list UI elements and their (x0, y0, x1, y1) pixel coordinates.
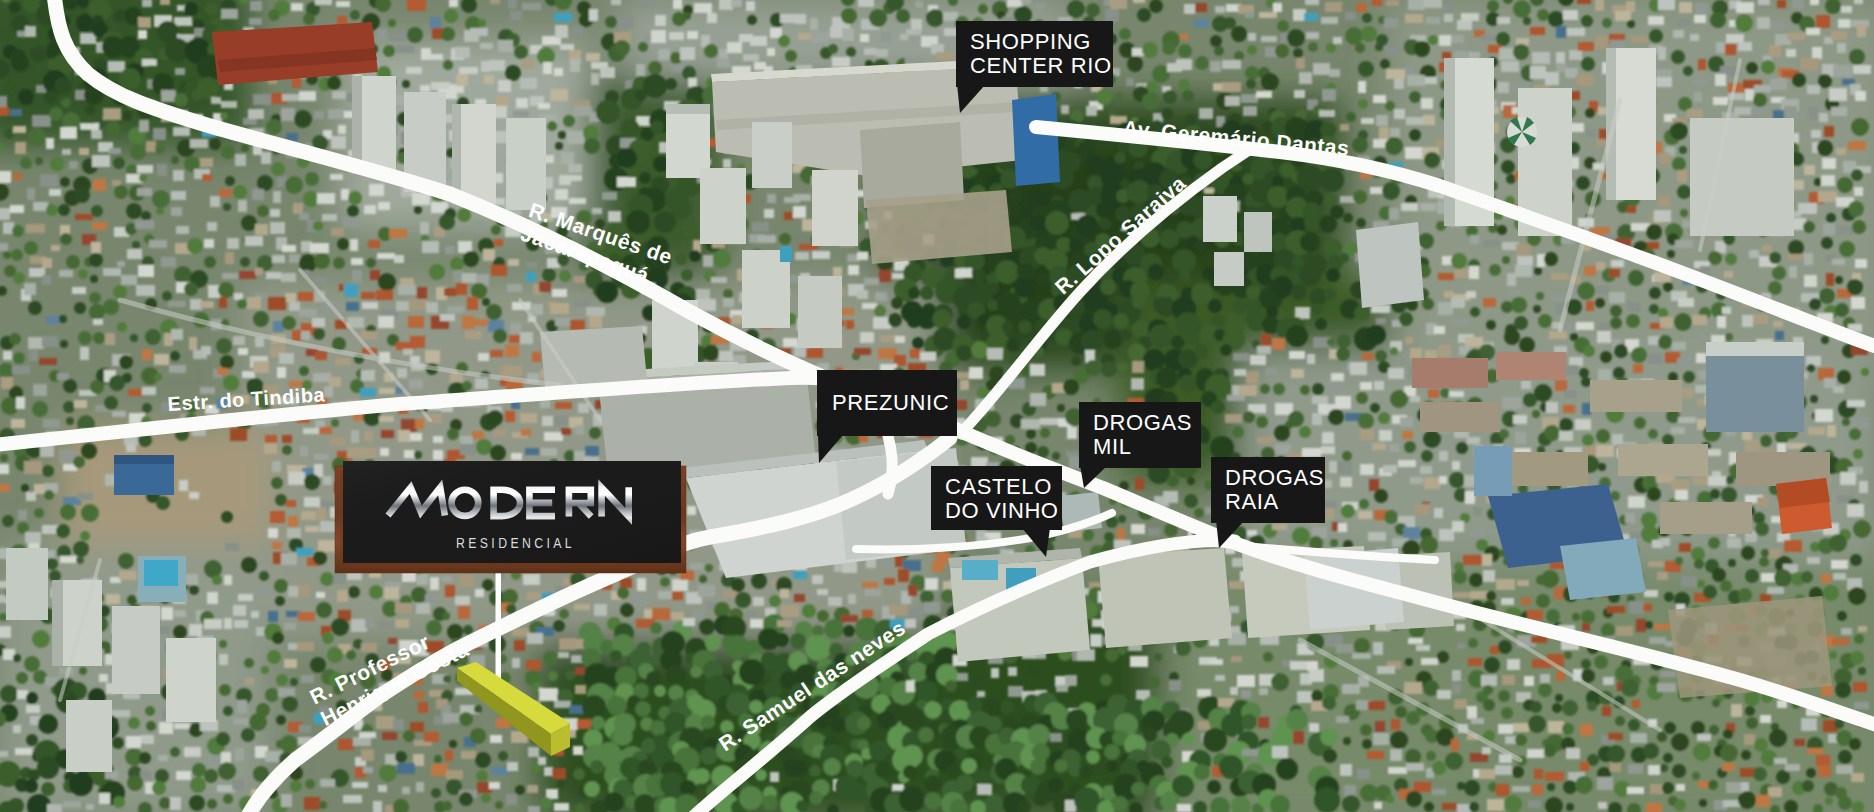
svg-text:RESIDENCIAL: RESIDENCIAL (456, 535, 575, 551)
